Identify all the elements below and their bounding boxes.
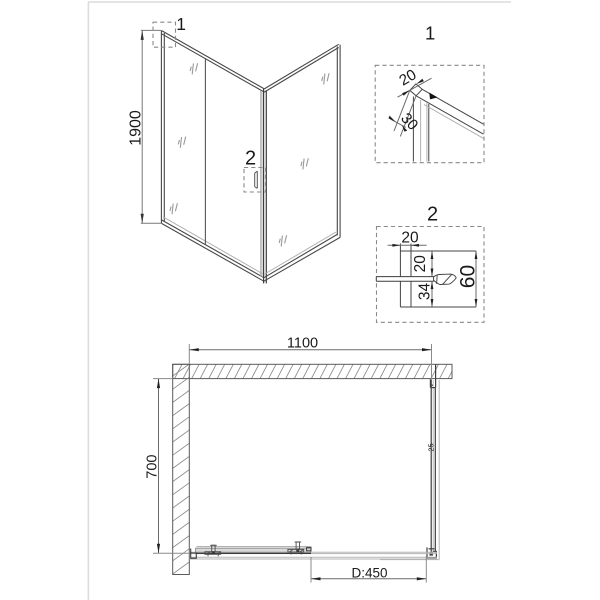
svg-text:20: 20 (396, 66, 419, 89)
svg-text:700: 700 (145, 454, 161, 478)
svg-text:1900: 1900 (128, 110, 145, 146)
svg-text:25: 25 (426, 443, 435, 451)
svg-text:1: 1 (425, 23, 435, 44)
svg-text:34: 34 (416, 283, 433, 301)
svg-text:1100: 1100 (287, 336, 318, 352)
svg-text:60: 60 (456, 265, 479, 288)
svg-text:20: 20 (401, 230, 419, 247)
svg-text:2: 2 (427, 204, 438, 226)
svg-text:20: 20 (412, 255, 429, 273)
svg-text:1: 1 (176, 14, 186, 34)
svg-text:2: 2 (245, 147, 256, 169)
svg-text:D:450: D:450 (351, 565, 387, 580)
